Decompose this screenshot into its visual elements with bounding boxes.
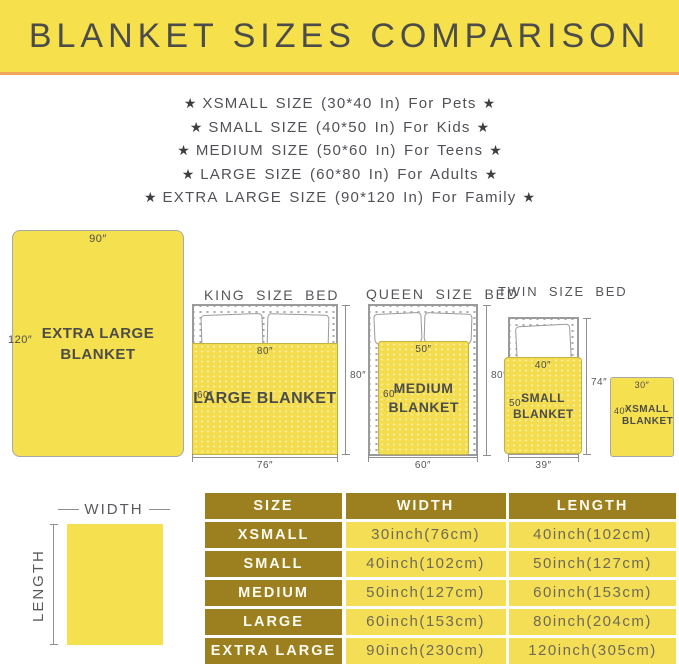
star-icon: ★: [171, 142, 196, 158]
table-header-width: WIDTH: [346, 493, 506, 519]
bed-height-measure-line: [486, 305, 487, 456]
star-icon: ★: [178, 95, 203, 111]
page-title: BLANKET SIZES COMPARISON: [29, 17, 650, 56]
bed-height-value: 74″: [591, 377, 607, 388]
king-bed-title: KING SIZE BED: [204, 287, 339, 303]
blanket-label: LARGE BLANKET: [193, 390, 336, 408]
length-measure-line: [53, 524, 54, 645]
star-icon: ★: [516, 189, 541, 205]
width-dimension: 90″: [13, 233, 183, 245]
size-list-text: XSMALL SIZE (30*40 In) For Pets: [202, 95, 476, 112]
table-row-size: EXTRA LARGE: [205, 638, 342, 664]
size-list-item: ★MEDIUM SIZE (50*60 In) For Teens★: [0, 139, 679, 163]
table-header-size: SIZE: [205, 493, 342, 519]
width-dimension: 40″: [505, 360, 581, 371]
bed-width-value: 60″: [368, 460, 478, 471]
star-icon: ★: [138, 189, 163, 205]
star-icon: ★: [184, 119, 209, 135]
table-row-width: 60inch(153cm): [346, 609, 506, 635]
star-icon: ★: [477, 95, 502, 111]
size-list-text: LARGE SIZE (60*80 In) For Adults: [200, 166, 479, 183]
bed-width-value: 76″: [192, 460, 338, 471]
bed-height-measure-line: [345, 305, 346, 455]
size-list-item: ★LARGE SIZE (60*80 In) For Adults★: [0, 163, 679, 187]
size-table: SIZE WIDTH LENGTH XSMALL 30inch(76cm) 40…: [205, 493, 675, 664]
measure-dash: [58, 509, 79, 510]
length-dimension: 60″: [383, 389, 399, 400]
bed-height-value: 80″: [350, 370, 366, 381]
table-row-size: SMALL: [205, 551, 342, 577]
table-header-length: LENGTH: [509, 493, 676, 519]
width-legend-label: WIDTH: [84, 501, 143, 518]
size-list-item: ★XSMALL SIZE (30*40 In) For Pets★: [0, 92, 679, 116]
table-row-length: 40inch(102cm): [509, 522, 676, 548]
table-row-size: LARGE: [205, 609, 342, 635]
twin-bed-title: TWIN SIZE BED: [498, 284, 598, 299]
blanket-label: EXTRA LARGE BLANKET: [38, 323, 158, 365]
table-row-width: 30inch(76cm): [346, 522, 506, 548]
xsmall-blanket: 30″ 40″ XSMALL BLANKET: [610, 377, 674, 457]
bed-width-value: 39″: [508, 460, 579, 471]
table-row-width: 40inch(102cm): [346, 551, 506, 577]
extra-large-blanket: 90″ 120″ EXTRA LARGE BLANKET: [12, 230, 184, 457]
star-icon: ★: [479, 166, 504, 182]
star-icon: ★: [176, 166, 201, 182]
length-dimension: 120″: [8, 334, 32, 346]
table-row-width: 50inch(127cm): [346, 580, 506, 606]
large-blanket: 80″ 60″ LARGE BLANKET: [192, 343, 338, 455]
table-row-length: 60inch(153cm): [509, 580, 676, 606]
header-banner: BLANKET SIZES COMPARISON: [0, 0, 679, 75]
table-row-size: MEDIUM: [205, 580, 342, 606]
size-list-text: EXTRA LARGE SIZE (90*120 In) For Family: [163, 189, 517, 206]
size-list: ★XSMALL SIZE (30*40 In) For Pets★ ★SMALL…: [0, 92, 679, 210]
width-dimension: 30″: [611, 380, 673, 390]
size-list-item: ★SMALL SIZE (40*50 In) For Kids★: [0, 116, 679, 140]
small-blanket: 40″ 50″ SMALL BLANKET: [504, 357, 582, 454]
legend-blanket-swatch: [67, 524, 163, 645]
length-dimension: 40″: [614, 406, 629, 416]
table-row-length: 120inch(305cm): [509, 638, 676, 664]
table-row-width: 90inch(230cm): [346, 638, 506, 664]
measure-dash: [149, 509, 170, 510]
length-legend-label: LENGTH: [30, 538, 47, 633]
table-row-length: 80inch(204cm): [509, 609, 676, 635]
size-list-text: MEDIUM SIZE (50*60 In) For Teens: [196, 142, 483, 159]
table-row-size: XSMALL: [205, 522, 342, 548]
width-legend: WIDTH: [58, 500, 170, 518]
width-dimension: 80″: [193, 346, 337, 357]
size-list-text: SMALL SIZE (40*50 In) For Kids: [208, 119, 470, 136]
bed-width-measure-line: [192, 457, 338, 458]
length-dimension: 60″: [197, 390, 213, 401]
length-dimension: 50″: [509, 398, 525, 409]
blanket-label: XSMALL BLANKET: [622, 404, 672, 428]
size-list-item: ★EXTRA LARGE SIZE (90*120 In) For Family…: [0, 186, 679, 210]
width-dimension: 50″: [379, 344, 468, 355]
bed-width-measure-line: [368, 457, 478, 458]
blanket-sizes-infographic: BLANKET SIZES COMPARISON ★XSMALL SIZE (3…: [0, 0, 679, 667]
star-icon: ★: [483, 142, 508, 158]
medium-blanket: 50″ 60″ MEDIUM BLANKET: [378, 341, 469, 455]
table-row-length: 50inch(127cm): [509, 551, 676, 577]
star-icon: ★: [471, 119, 496, 135]
bed-height-measure-line: [586, 318, 587, 455]
bed-width-measure-line: [508, 457, 579, 458]
queen-bed-title: QUEEN SIZE BED: [366, 286, 480, 302]
